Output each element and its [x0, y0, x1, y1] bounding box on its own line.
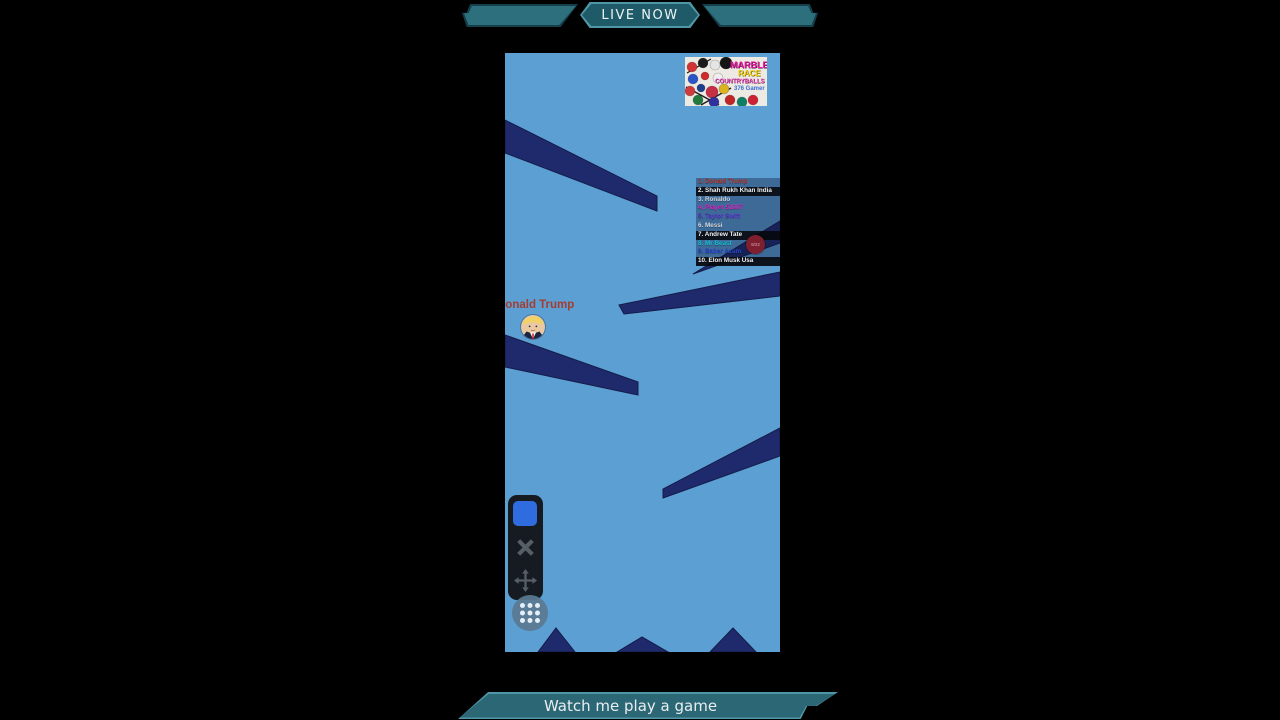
top-live-banner: LIVE NOW: [460, 2, 820, 28]
leaderboard-row: 1. Donald Trump: [696, 178, 780, 187]
ramp: [619, 272, 780, 314]
banner-left-wing: [462, 4, 578, 27]
move-arrows-icon: [514, 569, 537, 592]
game-scene: [505, 53, 780, 652]
shape-button[interactable]: [513, 501, 537, 526]
close-button[interactable]: [508, 537, 543, 558]
spike-triangle: [710, 628, 756, 652]
thumbnail-title-2: RACE: [738, 70, 761, 78]
ramp: [505, 120, 657, 211]
leaderboard-row: 9. Babar Azam: [696, 248, 780, 257]
leaderboard-row: 10. Elon Musk Usa: [696, 257, 780, 266]
stream-frame: LIVE NOW MARBLE RACE COUNTRYBALLS 376 Ga…: [0, 0, 1280, 720]
control-panel: [508, 495, 543, 600]
ramp: [505, 335, 638, 395]
grid-button[interactable]: [512, 595, 548, 631]
grid-dots-icon: [512, 595, 548, 631]
leaderboard-row: 8. Mr Beast: [696, 240, 780, 249]
spike-triangle: [617, 637, 668, 652]
leaderboard: 1. Donald Trump 2. Shah Rukh Khan India …: [696, 178, 780, 266]
thumbnail-title-3: COUNTRYBALLS: [715, 79, 764, 85]
leaderboard-row: 5. Taylor Swift: [696, 213, 780, 222]
leaderboard-row: 3. Ronaldo: [696, 196, 780, 205]
marble-race-thumbnail: MARBLE RACE COUNTRYBALLS 376 Gamer: [685, 57, 767, 106]
leaderboard-row: 4. Player 51007: [696, 204, 780, 213]
rank-progress-badge: 9/22: [746, 235, 765, 254]
player-name: Donald Trump: [505, 299, 574, 311]
thumbnail-subtitle: 376 Gamer: [734, 86, 765, 92]
move-button[interactable]: [508, 569, 543, 592]
spike-triangle: [538, 628, 575, 652]
leaderboard-row: 6. Messi: [696, 222, 780, 231]
player-avatar: [521, 315, 545, 339]
live-now-label: LIVE NOW: [601, 8, 678, 23]
leaderboard-row: 7. Andrew Tate: [696, 231, 780, 240]
live-now-badge: LIVE NOW: [580, 2, 700, 28]
bottom-banner-label: Watch me play a game: [544, 697, 751, 715]
bottom-banner: Watch me play a game: [455, 692, 840, 719]
leaderboard-row: 2. Shah Rukh Khan India: [696, 187, 780, 196]
close-icon: [515, 537, 536, 558]
trump-face-icon: [521, 315, 545, 339]
ramp: [663, 428, 780, 498]
game-viewport: MARBLE RACE COUNTRYBALLS 376 Gamer 1. Do…: [505, 53, 780, 652]
banner-right-wing: [702, 4, 818, 27]
